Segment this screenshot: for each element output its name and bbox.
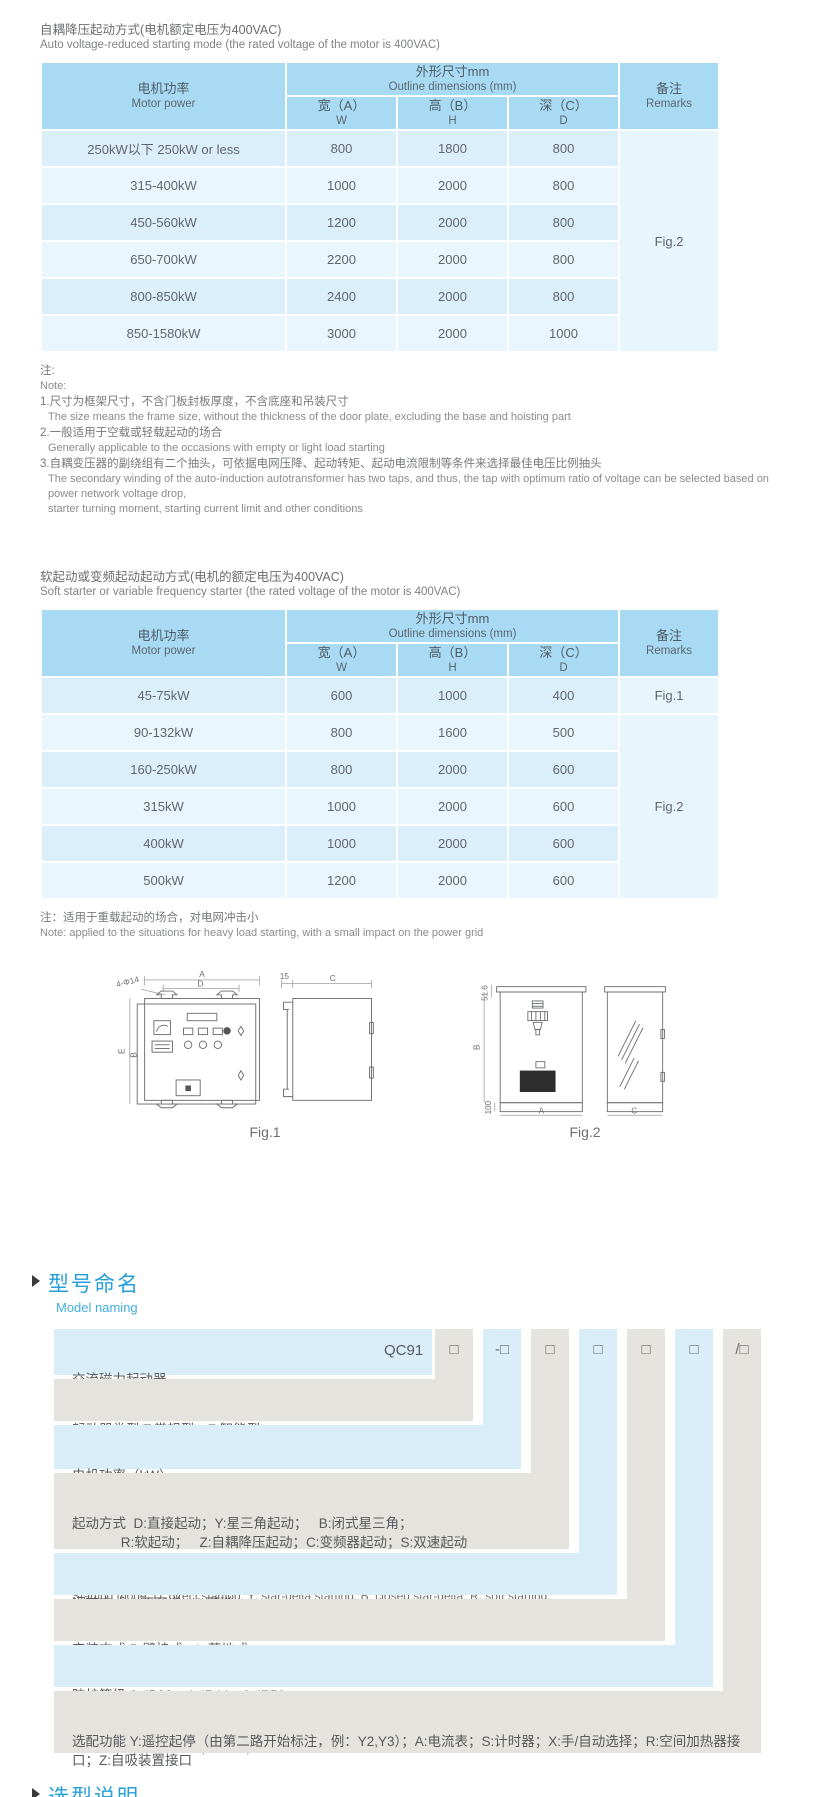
header-depth: 深（C）D: [508, 643, 619, 677]
svg-text:A: A: [539, 1106, 545, 1115]
naming-row-product: 交流磁力起动器 AC magnetic starter: [54, 1329, 432, 1375]
header-height: 高（B）H: [397, 96, 508, 130]
code-box-7: /□: [714, 1341, 770, 1358]
header-width: 宽（A）W: [286, 96, 397, 130]
header-outline: 外形尺寸mmOutline dimensions (mm): [286, 62, 619, 96]
section-arrow-icon: [32, 1275, 40, 1287]
header-remarks: 备注Remarks: [619, 62, 719, 130]
svg-text:15: 15: [280, 971, 290, 981]
header-outline: 外形尺寸mmOutline dimensions (mm): [286, 609, 619, 643]
table-row: 250kW以下 250kW or less 800 1800 800 Fig.2: [41, 130, 719, 167]
table2-note: 注：适用于重载起动的场合，对电网冲击小 Note: applied to the…: [40, 910, 780, 941]
table-row: 850-1580kW300020001000: [41, 315, 719, 352]
table-header-row: 电机功率Motor power 外形尺寸mmOutline dimensions…: [41, 62, 719, 96]
code-column-6: [675, 1329, 713, 1645]
header-depth: 深（C）D: [508, 96, 619, 130]
table-row: 160-250kW8002000600: [41, 751, 719, 788]
table-row: 315kW10002000600: [41, 788, 719, 825]
table-row: 90-132kW 800 1600 500 Fig.2: [41, 714, 719, 751]
section2-title-zh: 软起动或变频起动起动方式(电机的额定电压为400VAC): [40, 569, 830, 585]
table-row: 400kW10002000600: [41, 825, 719, 862]
table-row: 45-75kW 600 1000 400 Fig.1: [41, 677, 719, 714]
code-column-4: [579, 1329, 617, 1553]
svg-text:100: 100: [484, 1100, 493, 1114]
header-motor-power: 电机功率Motor power: [41, 609, 286, 677]
naming-row-starting-mode: 起动方式 D:直接起动；Y:星三角起动； B:闭式星三角； R:软起动； Z:自…: [54, 1473, 569, 1549]
catalog-page: 自耦降压起动方式(电机额定电压为400VAC) Auto voltage-red…: [0, 0, 830, 1797]
naming-row-installation: 安装方式 B:壁挂式；L:落地式 Installation: B: wall-m…: [54, 1599, 665, 1641]
remark-fig1: Fig.1: [619, 677, 719, 714]
model-naming-title-en: Model naming: [56, 1300, 830, 1315]
section-arrow-icon: [32, 1788, 40, 1797]
svg-text:4-Φ14: 4-Φ14: [115, 974, 140, 989]
fig2-drawing: 51.6 100 B: [450, 967, 720, 1117]
model-naming-diagram: QC91 □ -□ □ □ □ □ /□ 交流磁力起动器 AC magnetic…: [54, 1329, 794, 1753]
merged-remark-fig2: Fig.2: [619, 714, 719, 899]
table-row: 500kW12002000600: [41, 862, 719, 899]
naming-row-motor-power: 电机功率（kW） Motor power (kW): [54, 1425, 521, 1469]
auto-voltage-table: 电机功率Motor power 外形尺寸mmOutline dimensions…: [40, 61, 720, 353]
svg-text:B: B: [128, 1052, 138, 1058]
section1-title-en: Auto voltage-reduced starting mode (the …: [40, 38, 830, 53]
figure-2: 51.6 100 B: [450, 967, 720, 1140]
table-row: 450-560kW12002000800: [41, 204, 719, 241]
figure-1: A D 4-Φ14 E B: [110, 967, 420, 1140]
naming-row-protection-grade: 防护等级 3: IP23；4: IP44；6: IP56 Protection …: [54, 1645, 713, 1687]
header-remarks: 备注Remarks: [619, 609, 719, 677]
table-header-row: 电机功率Motor power 外形尺寸mmOutline dimensions…: [41, 609, 719, 643]
code-column-7: [723, 1329, 761, 1691]
fig2-caption: Fig.2: [450, 1124, 720, 1140]
naming-row-starter-type: 起动器类型 T:常规型；Z:智能型 Starter types: T: comm…: [54, 1379, 473, 1421]
merged-remark-fig2: Fig.2: [619, 130, 719, 352]
svg-text:D: D: [197, 978, 203, 988]
soft-starter-table: 电机功率Motor power 外形尺寸mmOutline dimensions…: [40, 608, 720, 900]
model-naming-heading: 型号命名 Model naming: [32, 1268, 830, 1315]
section1-title-zh: 自耦降压起动方式(电机额定电压为400VAC): [40, 22, 830, 38]
section2-title-en: Soft starter or variable frequency start…: [40, 585, 830, 600]
model-naming-title-zh: 型号命名: [48, 1273, 140, 1296]
dimension-figures: A D 4-Φ14 E B: [110, 967, 830, 1140]
table-row: 650-700kW22002000800: [41, 241, 719, 278]
header-motor-power: 电机功率Motor power: [41, 62, 286, 130]
svg-text:C: C: [330, 973, 336, 983]
header-height: 高（B）H: [397, 643, 508, 677]
header-width: 宽（A）W: [286, 643, 397, 677]
table1-notes: 注: Note: 1.尺寸为框架尺寸，不含门板封板厚度，不含底座和吊装尺寸 Th…: [40, 363, 780, 517]
code-column-5: [627, 1329, 665, 1599]
svg-text:B: B: [473, 1045, 482, 1050]
naming-row-optional-functions: 选配功能 Y:遥控起停（由第二路开始标注，例：Y2,Y3）；A:电流表；S:计时…: [54, 1691, 761, 1753]
svg-text:C: C: [631, 1106, 637, 1115]
naming-row-operating-mode: 运转方式 1:不可逆；2:可逆 Operating mode: 1: irrev…: [54, 1553, 617, 1595]
model-prefix: QC91: [384, 1342, 423, 1359]
table-row: 800-850kW24002000800: [41, 278, 719, 315]
svg-text:E: E: [116, 1048, 126, 1054]
table-row: 315-400kW10002000800: [41, 167, 719, 204]
fig1-drawing: A D 4-Φ14 E B: [110, 967, 420, 1117]
svg-text:51.6: 51.6: [481, 985, 490, 1001]
fig1-caption: Fig.1: [110, 1124, 420, 1140]
